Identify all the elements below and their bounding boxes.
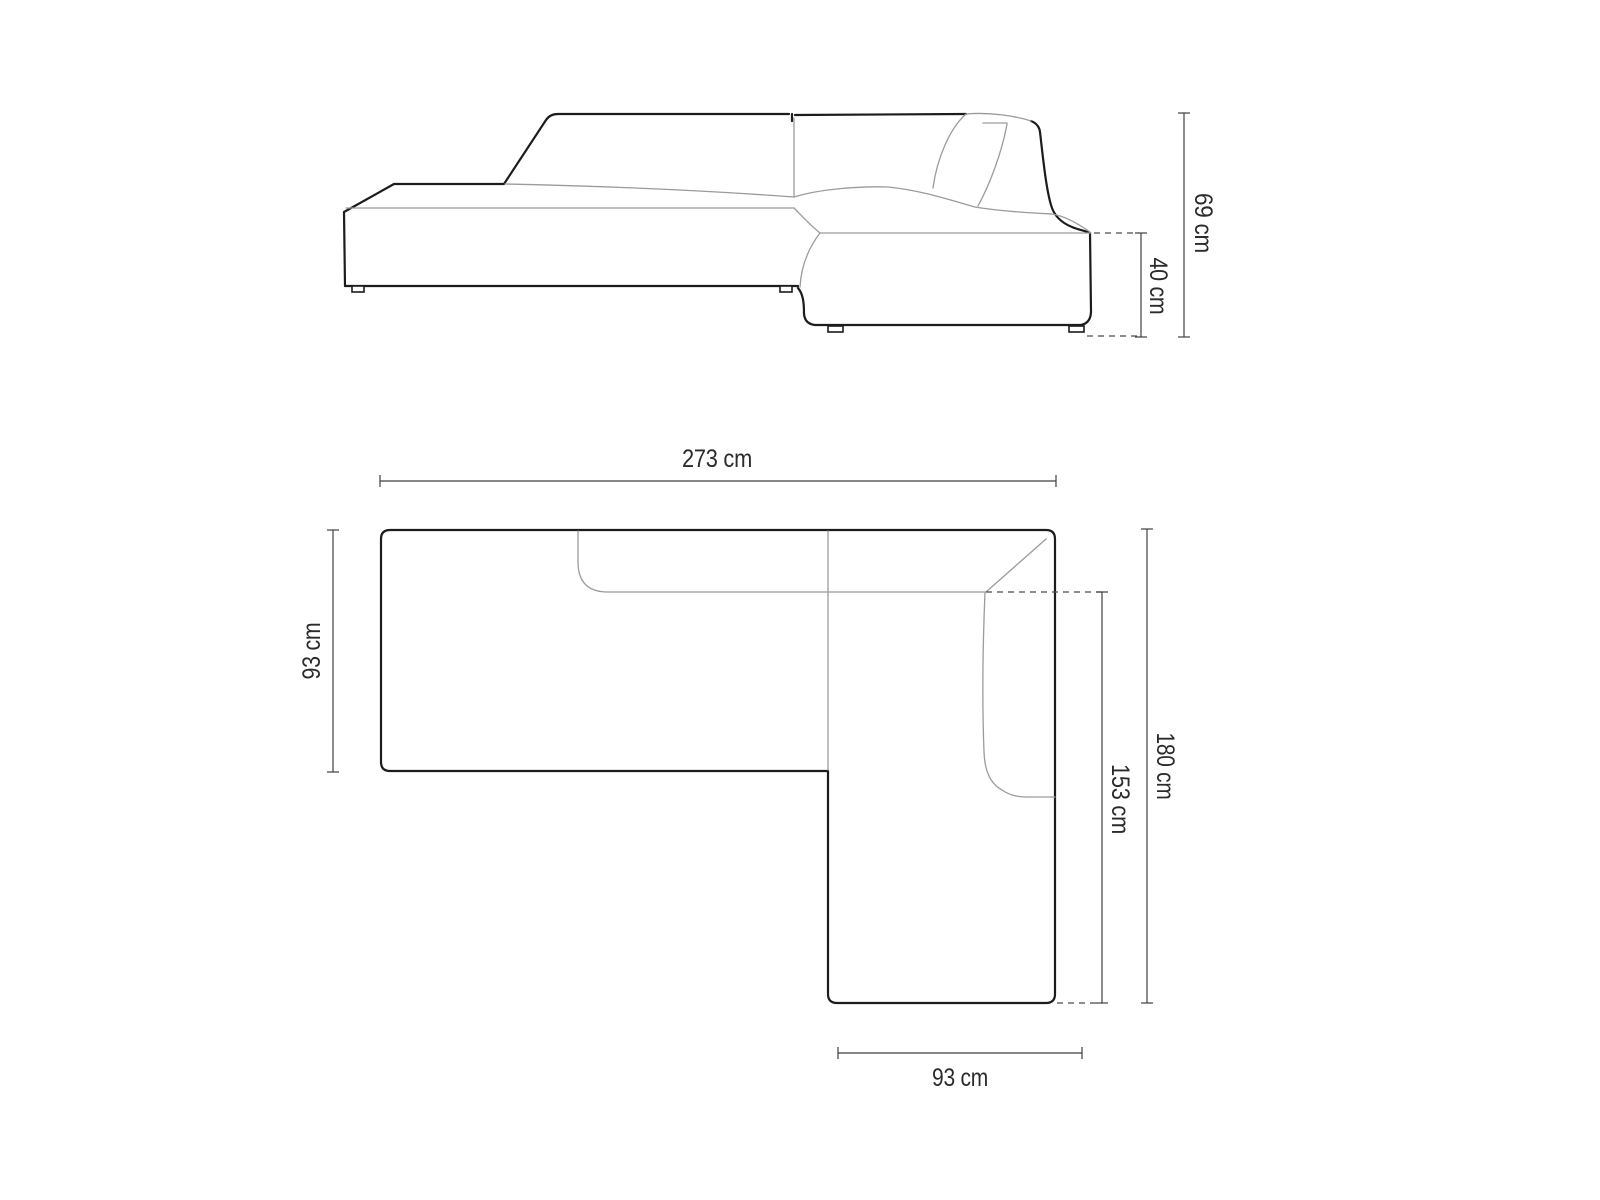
sofa-side-outline: [344, 114, 1091, 325]
side-elevation-view: 69 cm 40 cm: [344, 113, 1217, 337]
dim-label-total-width: 273 cm: [682, 445, 752, 473]
sofa-plan-seams: [578, 531, 1055, 797]
right-backrest-inner-seam: [983, 592, 1055, 797]
foot-mid: [780, 286, 792, 292]
backrest-top-edge: [795, 114, 966, 115]
dim-label-left-depth: 93 cm: [298, 623, 326, 680]
back-seat-boundary-seam: [505, 184, 794, 197]
right-backrest-and-base-outline: [798, 121, 1091, 325]
back-cushion-right-arc-seam: [978, 124, 1007, 206]
dim-label-chaise-width: 93 cm: [932, 1064, 988, 1092]
dim-label-total-depth: 180 cm: [1151, 733, 1179, 800]
dimension-total-width: 273 cm: [380, 445, 1056, 487]
foot-chaise-right: [1069, 326, 1084, 332]
dimension-inner-length: 153 cm: [1096, 592, 1134, 1003]
back-cushion-left-arc-seam: [933, 114, 966, 188]
dimension-total-height: 69 cm: [1178, 113, 1217, 337]
dimension-diagram-page: 69 cm 40 cm: [0, 0, 1600, 1200]
seat-corner-connector-seam: [794, 208, 820, 233]
dimension-diagram: 69 cm 40 cm: [0, 0, 1600, 1200]
sofa-plan-outline: [381, 530, 1055, 1003]
foot-chaise-left: [828, 326, 843, 332]
dimension-left-depth: 93 cm: [298, 530, 339, 772]
foot-left: [352, 286, 364, 292]
backrest-front-seam: [578, 531, 985, 592]
top-plan-view: 273 cm 93 cm 180 cm 153 cm: [298, 445, 1179, 1092]
plan-l-shape: [381, 530, 1055, 1003]
dim-label-total-height: 69 cm: [1189, 193, 1217, 253]
dim-label-inner-length: 153 cm: [1106, 764, 1134, 834]
side-extension-dashes: [1087, 233, 1139, 336]
dim-label-seat-height: 40 cm: [1144, 258, 1172, 315]
dimension-chaise-width: 93 cm: [838, 1047, 1082, 1092]
chaise-cushion-hump-seam: [794, 187, 1090, 232]
back-cushion-top-seam: [966, 113, 1031, 121]
dimension-seat-height: 40 cm: [1135, 233, 1172, 337]
corner-diagonal-seam: [986, 539, 1046, 592]
left-module-outline: [344, 114, 789, 286]
dimension-total-depth: 180 cm: [1141, 529, 1179, 1003]
base-left-edge-seam: [800, 233, 820, 287]
sofa-side-seams: [346, 113, 1091, 287]
